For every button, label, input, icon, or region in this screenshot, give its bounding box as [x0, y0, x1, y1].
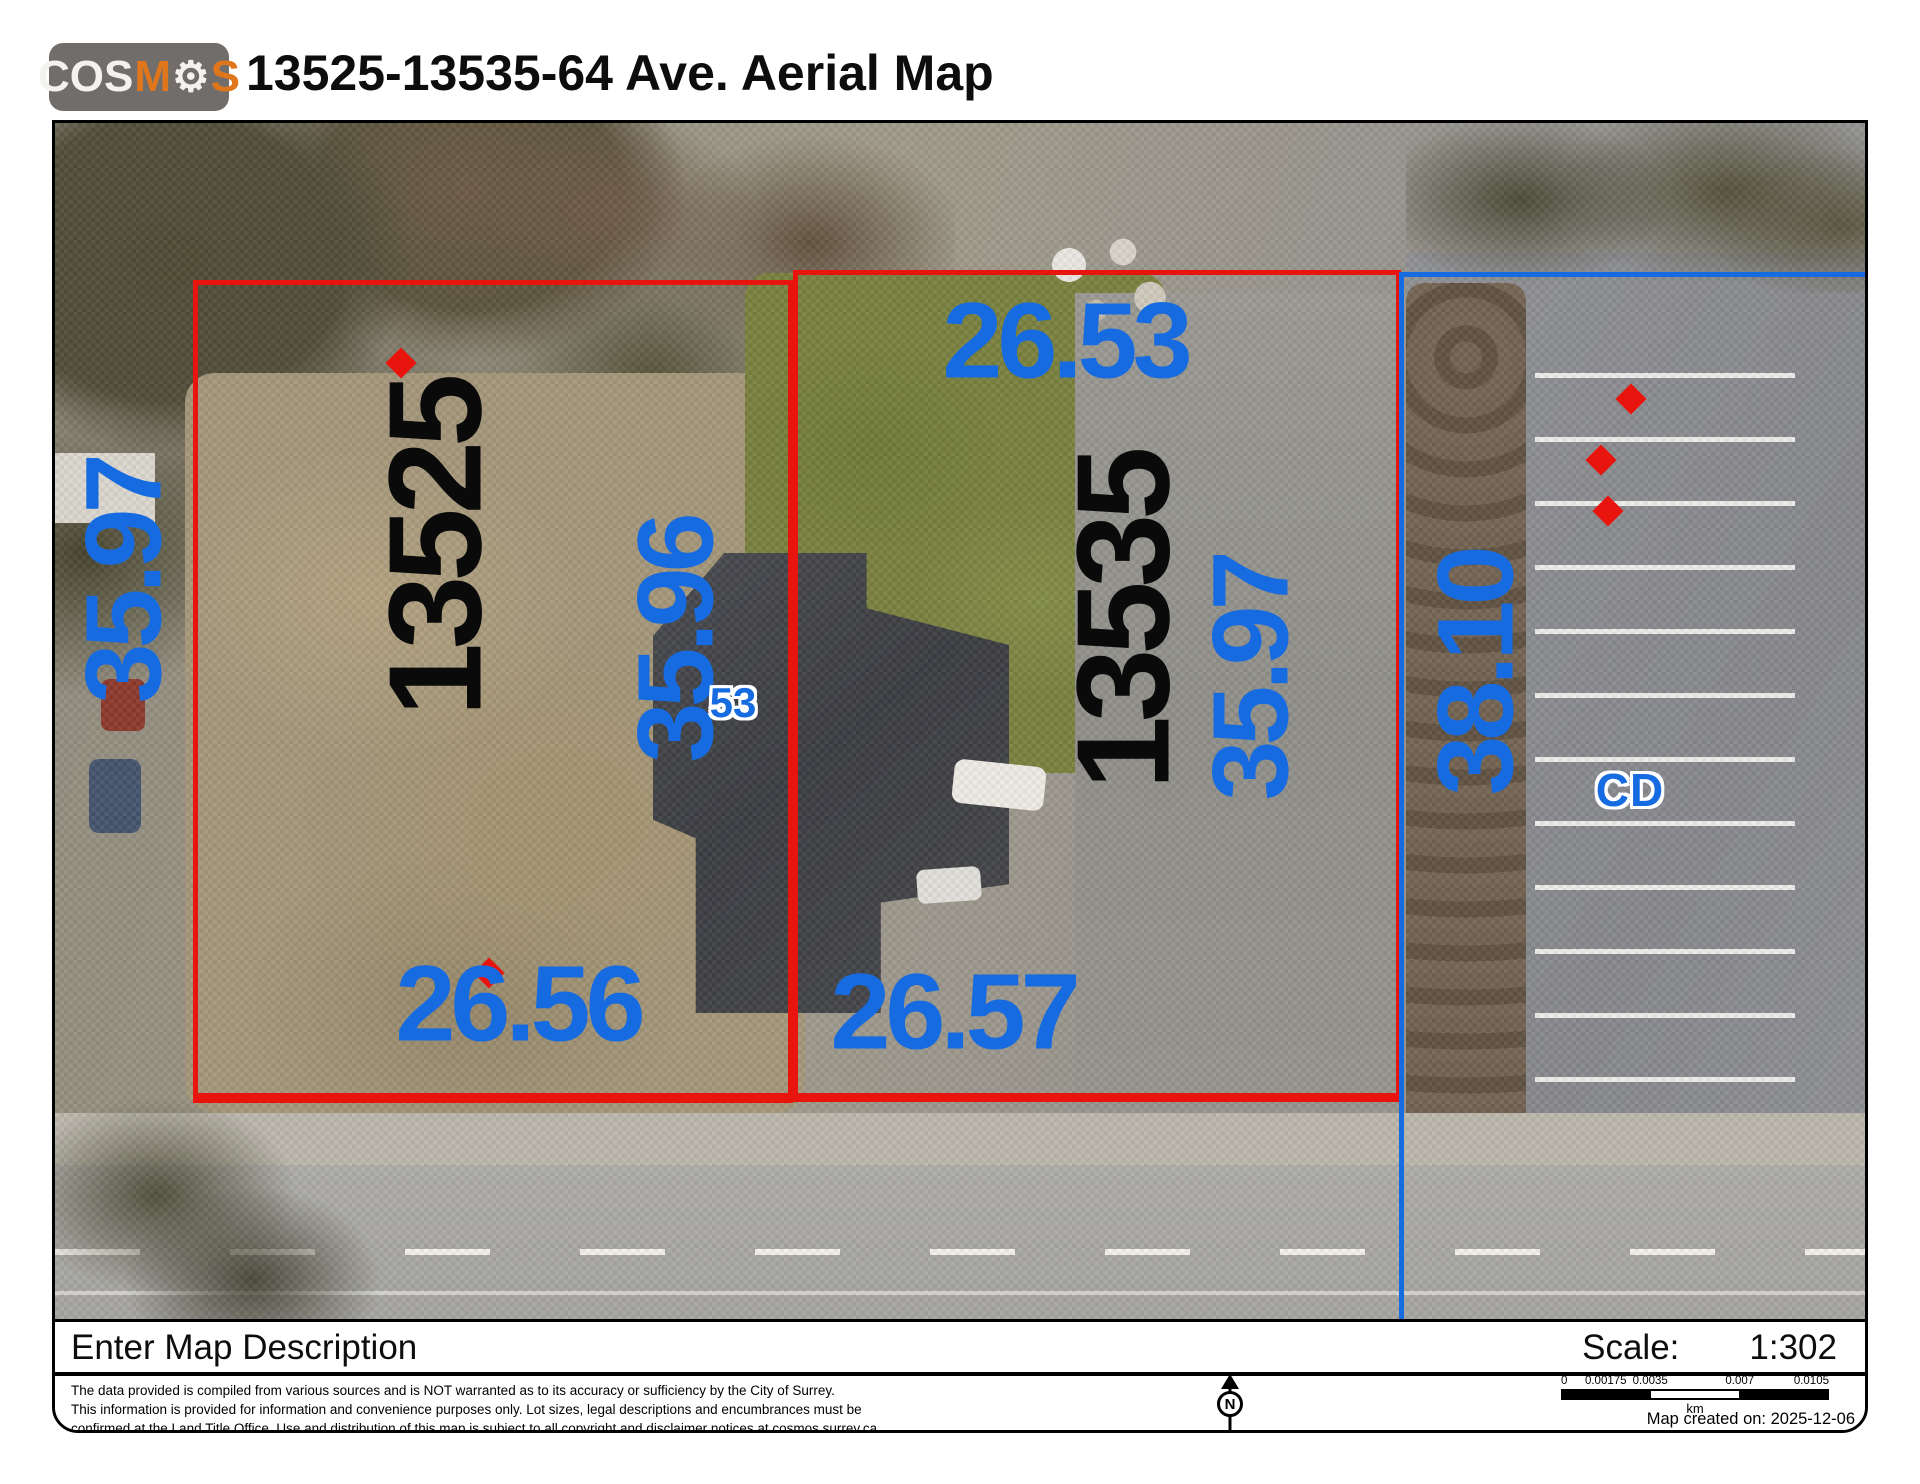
north-arrow-icon: N	[1210, 1376, 1250, 1432]
scale-label: Scale:	[1582, 1328, 1679, 1368]
zoning-label: CD	[1596, 763, 1664, 817]
page-title: 13525-13535-64 Ave. Aerial Map	[246, 36, 994, 110]
map-created-date: Map created on: 2025-12-06	[1647, 1410, 1855, 1429]
zoning-boundary-line-vertical	[1399, 272, 1404, 1319]
dimension-label: 26.57	[830, 949, 1075, 1074]
lot-number-label: 53	[710, 679, 757, 727]
map-description: Enter Map Description	[71, 1328, 417, 1368]
cosmos-logo: COSM⚙S	[49, 43, 229, 111]
scalebar-tick: 0.007	[1725, 1375, 1754, 1387]
map-footer: Enter Map Description Scale: 1:302 The d…	[55, 1319, 1865, 1433]
disclaimer-line: The data provided is compiled from vario…	[71, 1382, 931, 1401]
disclaimer-text: The data provided is compiled from vario…	[71, 1382, 931, 1433]
scalebar-tick: 0.00175	[1585, 1375, 1627, 1387]
dimension-label: 35.97	[61, 458, 186, 703]
parcel-number-label: 13535	[1048, 452, 1199, 789]
scalebar-tick: 0.0035	[1633, 1375, 1668, 1387]
disclaimer-line: This information is provided for informa…	[71, 1401, 931, 1420]
parcel-bottom-boundary	[193, 1093, 1403, 1102]
dimension-label: 35.97	[1188, 555, 1313, 800]
scale-row: Scale: 1:302	[1582, 1328, 1837, 1368]
logo-text-s: S	[211, 52, 240, 102]
parcel-number-label: 13525	[360, 379, 511, 716]
logo-text-m: M	[134, 52, 171, 102]
scalebar-bar	[1561, 1389, 1829, 1400]
map-frame: 26.53 26.56 26.57 35.97 35.96 35.97 38.1…	[52, 120, 1868, 1433]
scalebar-ticks: 0 0.00175 0.0035 0.007 0.0105	[1561, 1375, 1829, 1389]
aerial-map: 26.53 26.56 26.57 35.97 35.96 35.97 38.1…	[55, 123, 1865, 1319]
logo-text-cos: COS	[38, 52, 133, 102]
scalebar-tick: 0	[1561, 1375, 1567, 1387]
dimension-label: 26.53	[942, 278, 1187, 403]
north-letter: N	[1217, 1391, 1243, 1417]
scale-value: 1:302	[1749, 1328, 1837, 1368]
dimension-label: 38.10	[1413, 550, 1538, 795]
disclaimer-line: confirmed at the Land Title Office. Use …	[71, 1420, 931, 1433]
gear-icon: ⚙	[172, 56, 210, 98]
dimension-label: 26.56	[395, 941, 640, 1066]
scalebar-tick: 0.0105	[1794, 1375, 1829, 1387]
zoning-boundary-line-horizontal	[1401, 272, 1865, 277]
